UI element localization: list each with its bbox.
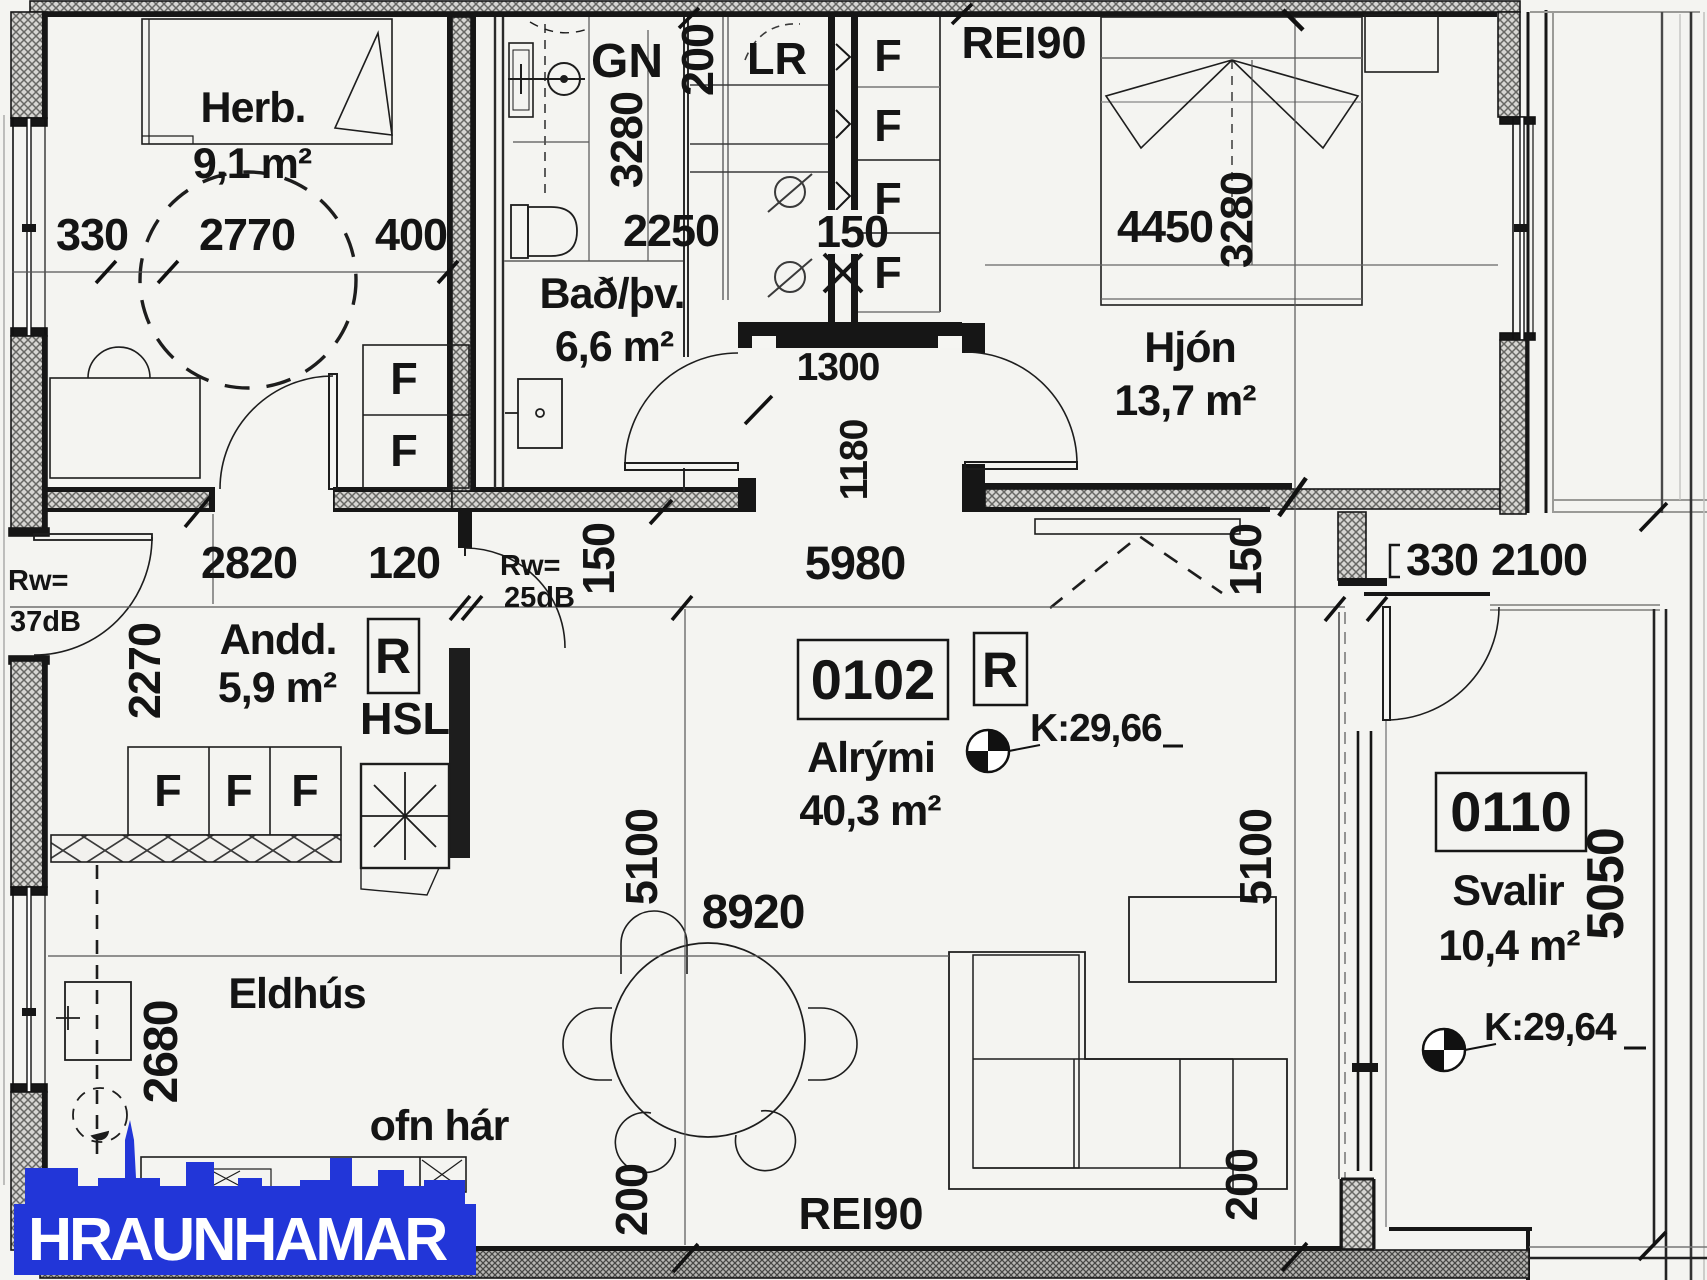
svg-text:5100: 5100 — [616, 809, 667, 905]
svg-text:2770: 2770 — [199, 209, 295, 260]
svg-text:F: F — [390, 353, 418, 404]
svg-text:8920: 8920 — [702, 886, 805, 939]
svg-text:GN: GN — [591, 35, 663, 88]
svg-text:Rw=: Rw= — [8, 565, 68, 597]
svg-text:37dB: 37dB — [10, 606, 81, 638]
svg-text:330: 330 — [1406, 534, 1478, 585]
svg-text:10,4 m²: 10,4 m² — [1438, 922, 1580, 970]
svg-text:F: F — [291, 765, 319, 816]
svg-text:HRAUNHAMAR: HRAUNHAMAR — [28, 1205, 447, 1273]
svg-text:2270: 2270 — [119, 623, 170, 719]
svg-text:400: 400 — [375, 209, 447, 260]
svg-text:F: F — [874, 247, 902, 298]
svg-text:K:29,64: K:29,64 — [1484, 1006, 1617, 1049]
svg-text:F: F — [874, 100, 902, 151]
svg-text:150: 150 — [573, 523, 624, 595]
svg-text:REI90: REI90 — [798, 1188, 923, 1239]
svg-text:F: F — [874, 30, 902, 81]
svg-text:200: 200 — [606, 1164, 657, 1236]
svg-text:2680: 2680 — [135, 1001, 188, 1104]
svg-text:9,1 m²: 9,1 m² — [193, 140, 312, 188]
svg-text:3280: 3280 — [1211, 172, 1262, 268]
svg-text:LR: LR — [747, 33, 807, 84]
svg-text:2250: 2250 — [623, 205, 719, 256]
svg-text:REI90: REI90 — [961, 17, 1086, 68]
svg-text:2100: 2100 — [1491, 534, 1587, 585]
svg-text:4450: 4450 — [1117, 201, 1213, 252]
svg-text:3280: 3280 — [601, 92, 652, 188]
svg-text:5050: 5050 — [1577, 828, 1635, 940]
svg-text:1300: 1300 — [797, 346, 880, 389]
svg-text:330: 330 — [56, 209, 128, 260]
svg-text:R: R — [982, 642, 1018, 698]
svg-text:Svalir: Svalir — [1452, 867, 1564, 915]
svg-text:5980: 5980 — [805, 536, 906, 589]
svg-text:K:29,66: K:29,66 — [1030, 707, 1162, 750]
svg-text:R: R — [375, 628, 411, 684]
svg-text:Herb.: Herb. — [201, 84, 306, 132]
svg-text:0110: 0110 — [1450, 780, 1572, 843]
svg-text:F: F — [154, 765, 182, 816]
svg-text:200: 200 — [1216, 1149, 1267, 1221]
svg-text:Rw=: Rw= — [500, 550, 560, 582]
svg-text:Andd.: Andd. — [220, 616, 337, 664]
svg-text:F: F — [390, 425, 418, 476]
svg-text:1180: 1180 — [833, 419, 876, 500]
svg-text:200: 200 — [672, 24, 723, 96]
svg-text:5100: 5100 — [1230, 809, 1281, 905]
svg-text:25dB: 25dB — [504, 582, 575, 614]
svg-text:5,9 m²: 5,9 m² — [218, 664, 337, 712]
svg-text:2820: 2820 — [201, 537, 297, 588]
svg-text:40,3 m²: 40,3 m² — [799, 787, 941, 835]
svg-text:HSL: HSL — [360, 693, 450, 744]
svg-text:F: F — [874, 173, 902, 224]
svg-text:6,6 m²: 6,6 m² — [555, 323, 674, 371]
svg-text:ofn hár: ofn hár — [370, 1102, 510, 1150]
svg-text:F: F — [225, 765, 253, 816]
svg-text:Alrými: Alrými — [807, 734, 935, 782]
svg-text:Eldhús: Eldhús — [228, 970, 365, 1018]
svg-text:13,7 m²: 13,7 m² — [1114, 377, 1256, 425]
svg-text:Hjón: Hjón — [1144, 324, 1236, 372]
svg-text:Bað/þv.: Bað/þv. — [539, 270, 684, 318]
svg-text:120: 120 — [368, 537, 440, 588]
svg-text:150: 150 — [1220, 524, 1271, 596]
svg-text:0102: 0102 — [811, 648, 936, 711]
